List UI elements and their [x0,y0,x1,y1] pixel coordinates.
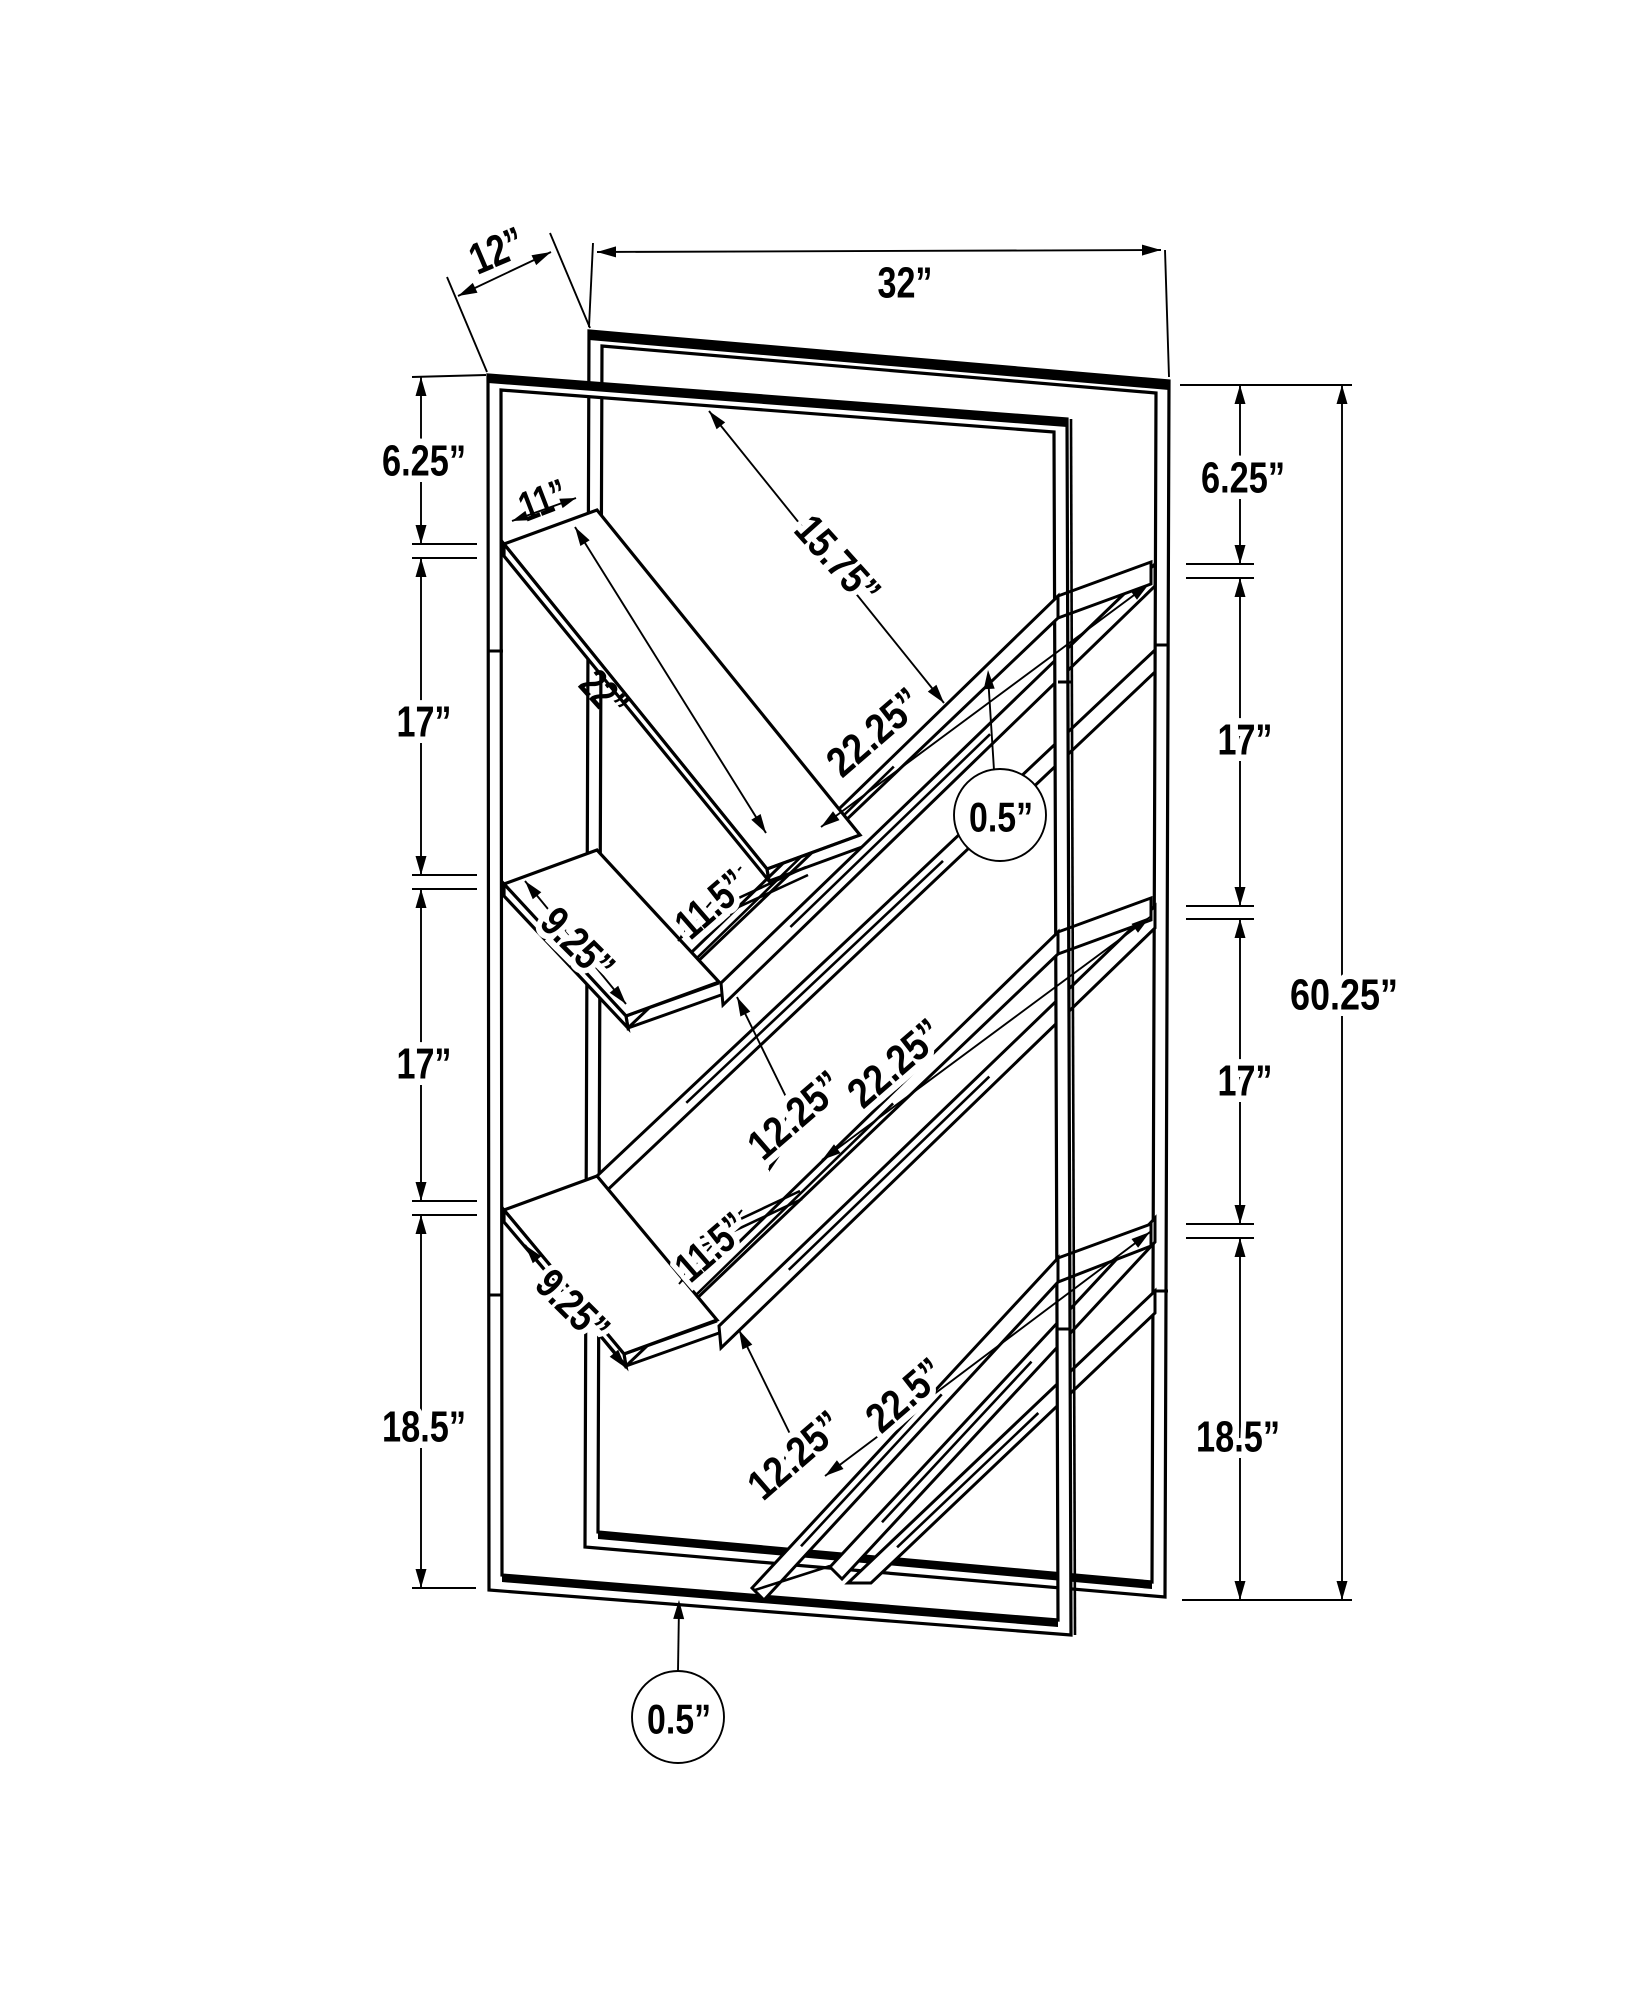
svg-text:6.25”: 6.25” [382,437,466,486]
svg-text:6.25”: 6.25” [1201,454,1285,503]
svg-text:60.25”: 60.25” [1290,971,1398,1020]
svg-text:17”: 17” [1218,1057,1273,1106]
svg-text:18.5”: 18.5” [1196,1413,1280,1462]
svg-text:0.5”: 0.5” [647,1696,711,1743]
svg-text:17”: 17” [397,698,452,747]
svg-text:0.5”: 0.5” [969,794,1033,841]
svg-text:18.5”: 18.5” [382,1403,466,1452]
svg-text:17”: 17” [397,1040,452,1089]
svg-text:32”: 32” [878,259,933,308]
svg-text:17”: 17” [1218,716,1273,765]
